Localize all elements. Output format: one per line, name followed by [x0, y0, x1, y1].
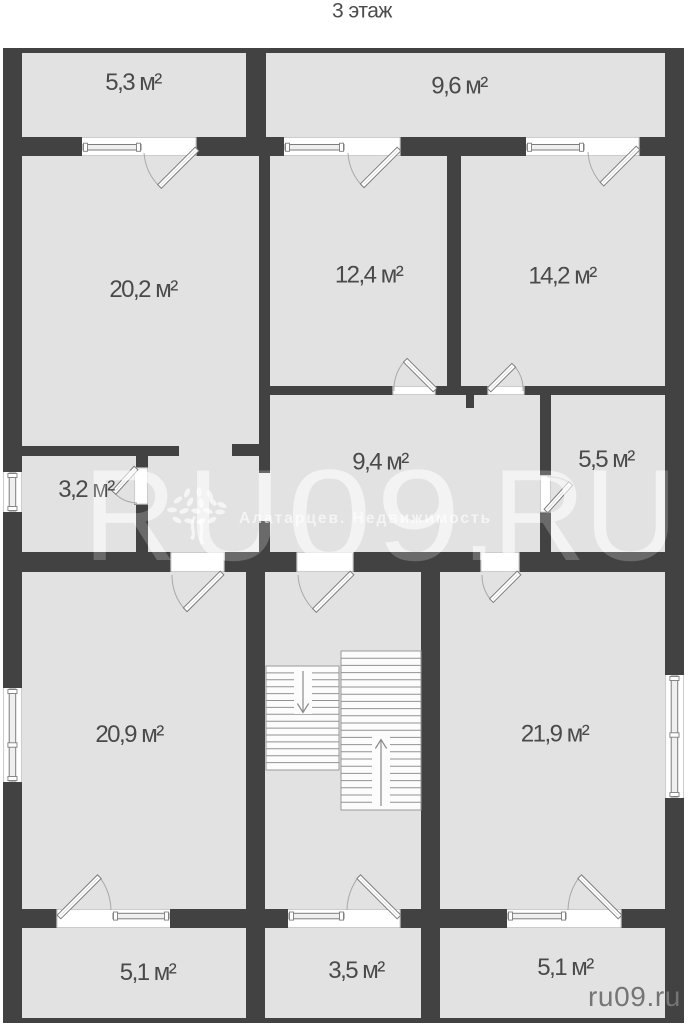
svg-text:5,1 м²: 5,1 м² [120, 959, 177, 986]
svg-text:12,4 м²: 12,4 м² [335, 262, 404, 289]
svg-text:ru09.ru: ru09.ru [588, 981, 681, 1012]
svg-text:Алатарцев. Недвижимость: Алатарцев. Недвижимость [239, 510, 492, 527]
svg-text:20,9 м²: 20,9 м² [95, 721, 164, 748]
svg-text:3 этаж: 3 этаж [332, 0, 392, 23]
svg-text:20,2 м²: 20,2 м² [109, 276, 178, 303]
svg-text:21,9 м²: 21,9 м² [521, 721, 590, 748]
svg-text:5,3 м²: 5,3 м² [105, 69, 162, 96]
svg-text:.RU: .RU [461, 442, 678, 588]
svg-text:3,5 м²: 3,5 м² [328, 957, 385, 984]
svg-text:5,1 м²: 5,1 м² [537, 954, 594, 981]
svg-text:9,6 м²: 9,6 м² [431, 73, 488, 100]
svg-text:14,2 м²: 14,2 м² [528, 263, 597, 290]
